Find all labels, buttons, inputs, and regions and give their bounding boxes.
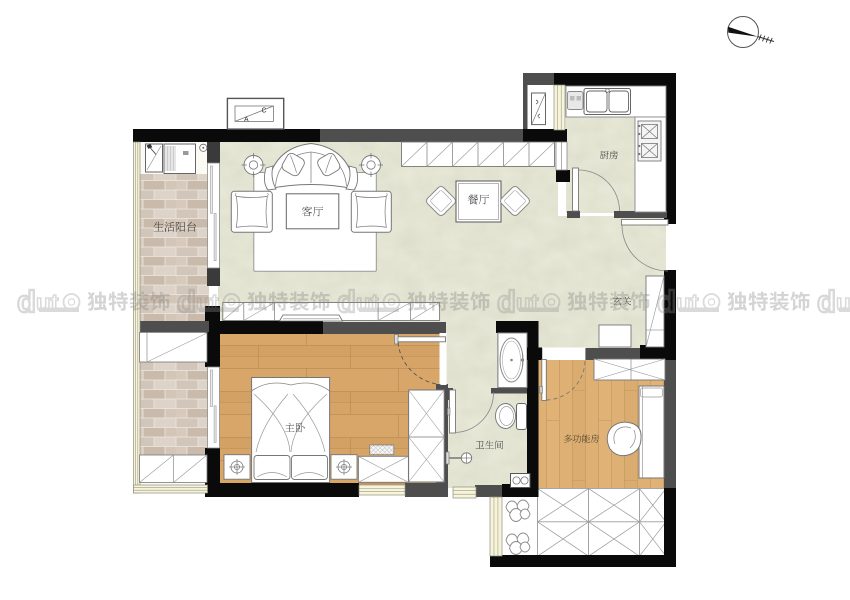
svg-text:C: C	[262, 108, 267, 115]
svg-text:ut: ut	[36, 290, 59, 317]
svg-text:A: A	[244, 117, 249, 124]
svg-text:d: d	[17, 284, 36, 319]
